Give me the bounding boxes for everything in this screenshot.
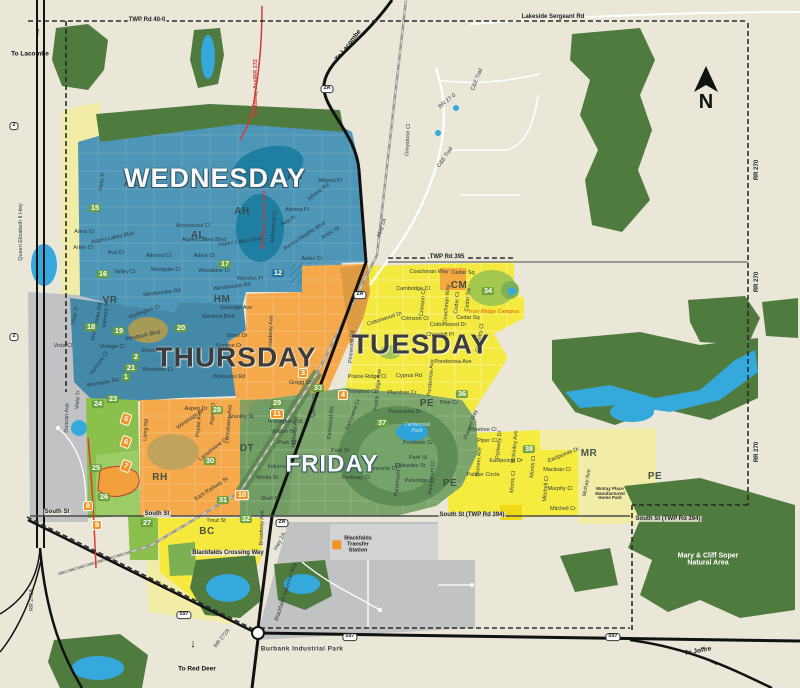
- street-label: Paramount Cl: [395, 463, 404, 497]
- street-label: McKay Ave: [583, 469, 593, 497]
- district-code-dt: DT: [240, 444, 254, 455]
- highway-shield-2a: 2A: [275, 519, 288, 527]
- day-zone-title-friday: FRIDAY: [285, 451, 378, 476]
- street-label: Aztec St: [321, 226, 342, 241]
- street-label: Vista Tr: [75, 391, 82, 410]
- direction-label: To Red Deer: [178, 667, 216, 674]
- street-label: Trout St: [206, 519, 225, 525]
- street-label: South St (TWP Rd 394): [439, 512, 506, 518]
- direction-arrow-icon: →: [707, 656, 721, 670]
- street-label: Westbrooke Rd: [213, 283, 251, 293]
- zone-number-badge: 1: [122, 373, 130, 381]
- highway-shield-597: 597: [605, 633, 620, 641]
- street-label: Prairie Ridge Ave: [374, 369, 383, 412]
- street-label: Eastpointe Dr: [489, 459, 522, 465]
- zone-number-badge: 8: [83, 501, 93, 511]
- highway-shield-2a: 2A: [320, 85, 333, 93]
- street-label: Ponderosa Ave: [428, 359, 437, 397]
- street-label: Vermont Cl: [90, 351, 110, 377]
- zone-number-badge: 25: [90, 464, 102, 472]
- highway-shield-597: 597: [342, 633, 357, 641]
- poi-label: Burbank Industrial Park: [261, 647, 344, 654]
- street-label: Crimson Cl: [420, 289, 428, 317]
- district-code-al: AL: [191, 231, 205, 242]
- street-label: Arlen Cl: [73, 246, 93, 252]
- street-label: South St (TWP Rd 394): [635, 516, 702, 522]
- street-label: Westbrooke Rd: [143, 289, 181, 299]
- street-label: Woodbine Cl: [198, 269, 229, 275]
- street-label: C&E Trail: [437, 147, 455, 169]
- street-label: Panorama Dr: [389, 410, 422, 416]
- direction-arrow-icon: ↑: [35, 27, 41, 39]
- street-label: Maclean Cl: [543, 468, 571, 474]
- street-label: Ava Pl: [281, 216, 298, 229]
- poi-label: Mary & Cliff Soper Natural Area: [678, 553, 739, 568]
- zone-number-badge: 27: [141, 519, 153, 527]
- street-label: Aztec Cr: [301, 257, 322, 263]
- zone-number-badge: 30: [204, 457, 216, 465]
- street-label: Morris Cl: [530, 456, 538, 478]
- street-label: Anna Cl: [74, 230, 94, 236]
- street-label: Duncan Ave: [65, 403, 72, 433]
- street-label: Murphy Cl: [547, 487, 572, 493]
- district-code-pe: PE: [443, 479, 457, 490]
- highway-shield-2: 2: [9, 333, 18, 341]
- street-label: Wellington Cr: [129, 305, 162, 322]
- zone-number-badge: 10: [235, 490, 249, 500]
- zone-number-badge: 20: [175, 324, 187, 332]
- street-label: Cottonwood Dr: [367, 312, 404, 329]
- district-code-vr: VR: [103, 296, 118, 307]
- transfer-station-icon: [332, 540, 341, 549]
- street-label: Blackfalds Industrial Way: [275, 562, 299, 622]
- zone-number-badge: 28: [211, 406, 223, 414]
- street-label: Vista Tr: [71, 306, 80, 325]
- compass-letter: N: [699, 94, 713, 110]
- street-label: Athens Rd: [307, 183, 331, 203]
- street-label: Blackfalds Crossing Way: [191, 550, 264, 556]
- poi-label: McKay Place Manufactured Home Park: [595, 487, 625, 501]
- highway-shield-2: 2: [9, 122, 18, 130]
- zone-number-badge: 4: [338, 390, 348, 400]
- street-label: Crimson Ct: [401, 317, 429, 323]
- district-code-cm: CM: [451, 281, 468, 292]
- street-label: Parkmount Cl: [429, 461, 438, 495]
- zone-number-badge: 18: [85, 323, 97, 331]
- street-label: Pinewood Cl: [346, 390, 377, 396]
- zone-number-badge: 5: [119, 412, 133, 427]
- highway-shield-597: 597: [176, 611, 191, 619]
- street-label: Laing Rd: [143, 419, 151, 441]
- street-label: Vintage Cl: [99, 345, 124, 351]
- zone-number-badge: 6: [119, 435, 133, 450]
- district-code-ah: AH: [234, 207, 249, 218]
- zone-number-badge: 16: [97, 270, 109, 278]
- street-label: Pine Cr: [440, 401, 458, 407]
- street-label: South St: [144, 511, 171, 517]
- zone-number-badge: 12: [272, 269, 284, 277]
- day-zone-title-wednesday: WEDNESDAY: [124, 164, 306, 192]
- street-label: RR 270: [754, 271, 760, 293]
- street-label: Westgate Cr: [151, 268, 181, 274]
- zone-number-badge: 19: [113, 327, 125, 335]
- street-label: Mitchell Cr: [550, 507, 576, 513]
- zone-number-badge: 15: [89, 204, 101, 212]
- day-zone-title-tuesday: TUESDAY: [352, 329, 490, 358]
- street-label: Womacks Rd: [86, 378, 119, 389]
- street-label: Ponderosa Ave: [434, 360, 471, 366]
- zone-number-badge: 36: [456, 390, 468, 398]
- street-label: Ava Cr: [108, 251, 125, 257]
- zone-number-badge: 2: [132, 353, 140, 361]
- district-code-pe: PE: [648, 472, 662, 483]
- street-label: Parkway Dr: [496, 431, 504, 460]
- compass: N: [699, 68, 713, 110]
- street-label: Alderwood Cl: [271, 210, 280, 243]
- street-label: Plumtree Cr: [387, 391, 416, 397]
- street-label: Stanford Blvd: [201, 315, 234, 321]
- zone-number-badge: 9: [92, 520, 102, 530]
- street-label: Adina Cl: [194, 254, 215, 260]
- street-label: Piper Cl: [477, 439, 497, 445]
- street-label: Lakeside Sergeant Rd: [521, 14, 586, 20]
- street-label: Almond Cr: [146, 254, 172, 260]
- zone-number-badge: 31: [217, 496, 229, 504]
- highway-shield-2a: 2A: [353, 291, 366, 299]
- street-label: Coachman Way: [410, 270, 449, 276]
- street-label: Pioneer Way: [464, 409, 480, 440]
- street-label: Broadway Ave: [260, 510, 267, 545]
- zone-number-badge: 17: [219, 260, 231, 268]
- street-label: South St: [44, 509, 71, 515]
- street-label: RR 270: [754, 441, 760, 463]
- transfer-station-label: Blackfalds Transfer Station: [344, 536, 372, 553]
- zone-number-badge: 32: [240, 515, 252, 523]
- district-code-pe: PE: [420, 399, 434, 410]
- street-label: Pondside Cr: [403, 441, 433, 447]
- district-code-rh: RH: [152, 473, 167, 484]
- direction-arrow-icon: ↓: [190, 639, 196, 651]
- street-label: RR 27-0: [438, 93, 457, 111]
- zone-number-badge: 38: [523, 445, 535, 453]
- street-label: Broadway Avenue 272: [261, 191, 269, 249]
- direction-label: To Joffre: [684, 646, 712, 657]
- street-label: Womacks Rd: [213, 375, 246, 381]
- street-label: Park St: [278, 441, 296, 447]
- street-label: Park St: [409, 456, 427, 462]
- street-label: Vista Tr: [99, 172, 108, 191]
- street-label: TWP Rd 395: [429, 254, 466, 260]
- street-label: Sunridge Ave: [220, 306, 253, 312]
- street-label: Cyprus Rd: [396, 374, 422, 380]
- street-label: Greystone Cl: [405, 124, 412, 156]
- blackfalds-zone-map: TWP Rd 40-0Lakeside Sergeant RdQueen Eli…: [0, 0, 800, 688]
- street-label: RR 272A: [30, 589, 36, 611]
- zone-number-badge: 26: [98, 493, 110, 501]
- zone-number-badge: 37: [376, 419, 388, 427]
- zone-number-badge: 11: [270, 409, 284, 419]
- street-label: Shull St: [261, 497, 280, 503]
- district-code-mr: MR: [581, 449, 598, 460]
- street-label: RR 272A: [214, 628, 232, 649]
- street-label: Queen Cl: [311, 394, 319, 418]
- street-label: Athena Pl: [285, 208, 309, 214]
- street-label: Palmer Circle: [466, 473, 499, 479]
- street-label: Hwy 2A: [377, 218, 388, 238]
- district-code-bc: BC: [199, 527, 214, 538]
- street-label: Gregg St: [289, 381, 311, 387]
- street-label: Valley Cr: [114, 270, 136, 276]
- street-label: Cedar Sq: [456, 316, 479, 322]
- street-label: C&E Trail: [471, 68, 485, 92]
- street-label: Parkwood Rd: [328, 406, 337, 439]
- zone-number-badge: 29: [271, 399, 283, 407]
- day-zone-title-thursday: THURSDAY: [156, 342, 317, 371]
- zone-number-badge: 24: [92, 400, 104, 408]
- zone-number-badge: 34: [482, 287, 494, 295]
- direction-label: To Lacombe: [11, 52, 49, 59]
- street-label: Morris Cl: [510, 471, 518, 493]
- street-label: Eastpointe Dr: [547, 447, 580, 465]
- poi-label: Centennial Park: [404, 423, 430, 435]
- transfer-station-callout: Blackfalds Transfer Station: [332, 536, 372, 553]
- street-label: Hwy 2A: [274, 532, 288, 551]
- district-code-hm: HM: [214, 295, 231, 306]
- street-label: Aspen Lakes Blvd: [91, 232, 135, 247]
- poi-label: Iron Ridge Campus: [469, 310, 519, 316]
- street-label: TWP Rd 40-0: [128, 17, 167, 23]
- zone-number-badge: 21: [125, 364, 137, 372]
- street-label: RR 270: [754, 159, 760, 181]
- map-labels-layer: TWP Rd 40-0Lakeside Sergeant RdQueen Eli…: [0, 0, 800, 688]
- street-label: Broadway Ave/RR 272: [254, 59, 260, 117]
- zone-number-badge: 23: [107, 395, 119, 403]
- zone-number-badge: 7: [119, 459, 133, 474]
- street-label: Queen Elizabeth II Hwy: [19, 203, 25, 260]
- street-label: Cedar Sq: [451, 271, 474, 277]
- street-label: Athena Pl: [318, 179, 342, 185]
- street-label: Silver Dr: [226, 334, 247, 340]
- zone-number-badge: 33: [312, 384, 324, 392]
- street-label: Cedar Cl: [454, 292, 462, 314]
- street-label: Vista Cl: [54, 344, 73, 350]
- street-label: Winks St: [256, 476, 278, 482]
- street-label: Panorama Cr: [346, 399, 363, 432]
